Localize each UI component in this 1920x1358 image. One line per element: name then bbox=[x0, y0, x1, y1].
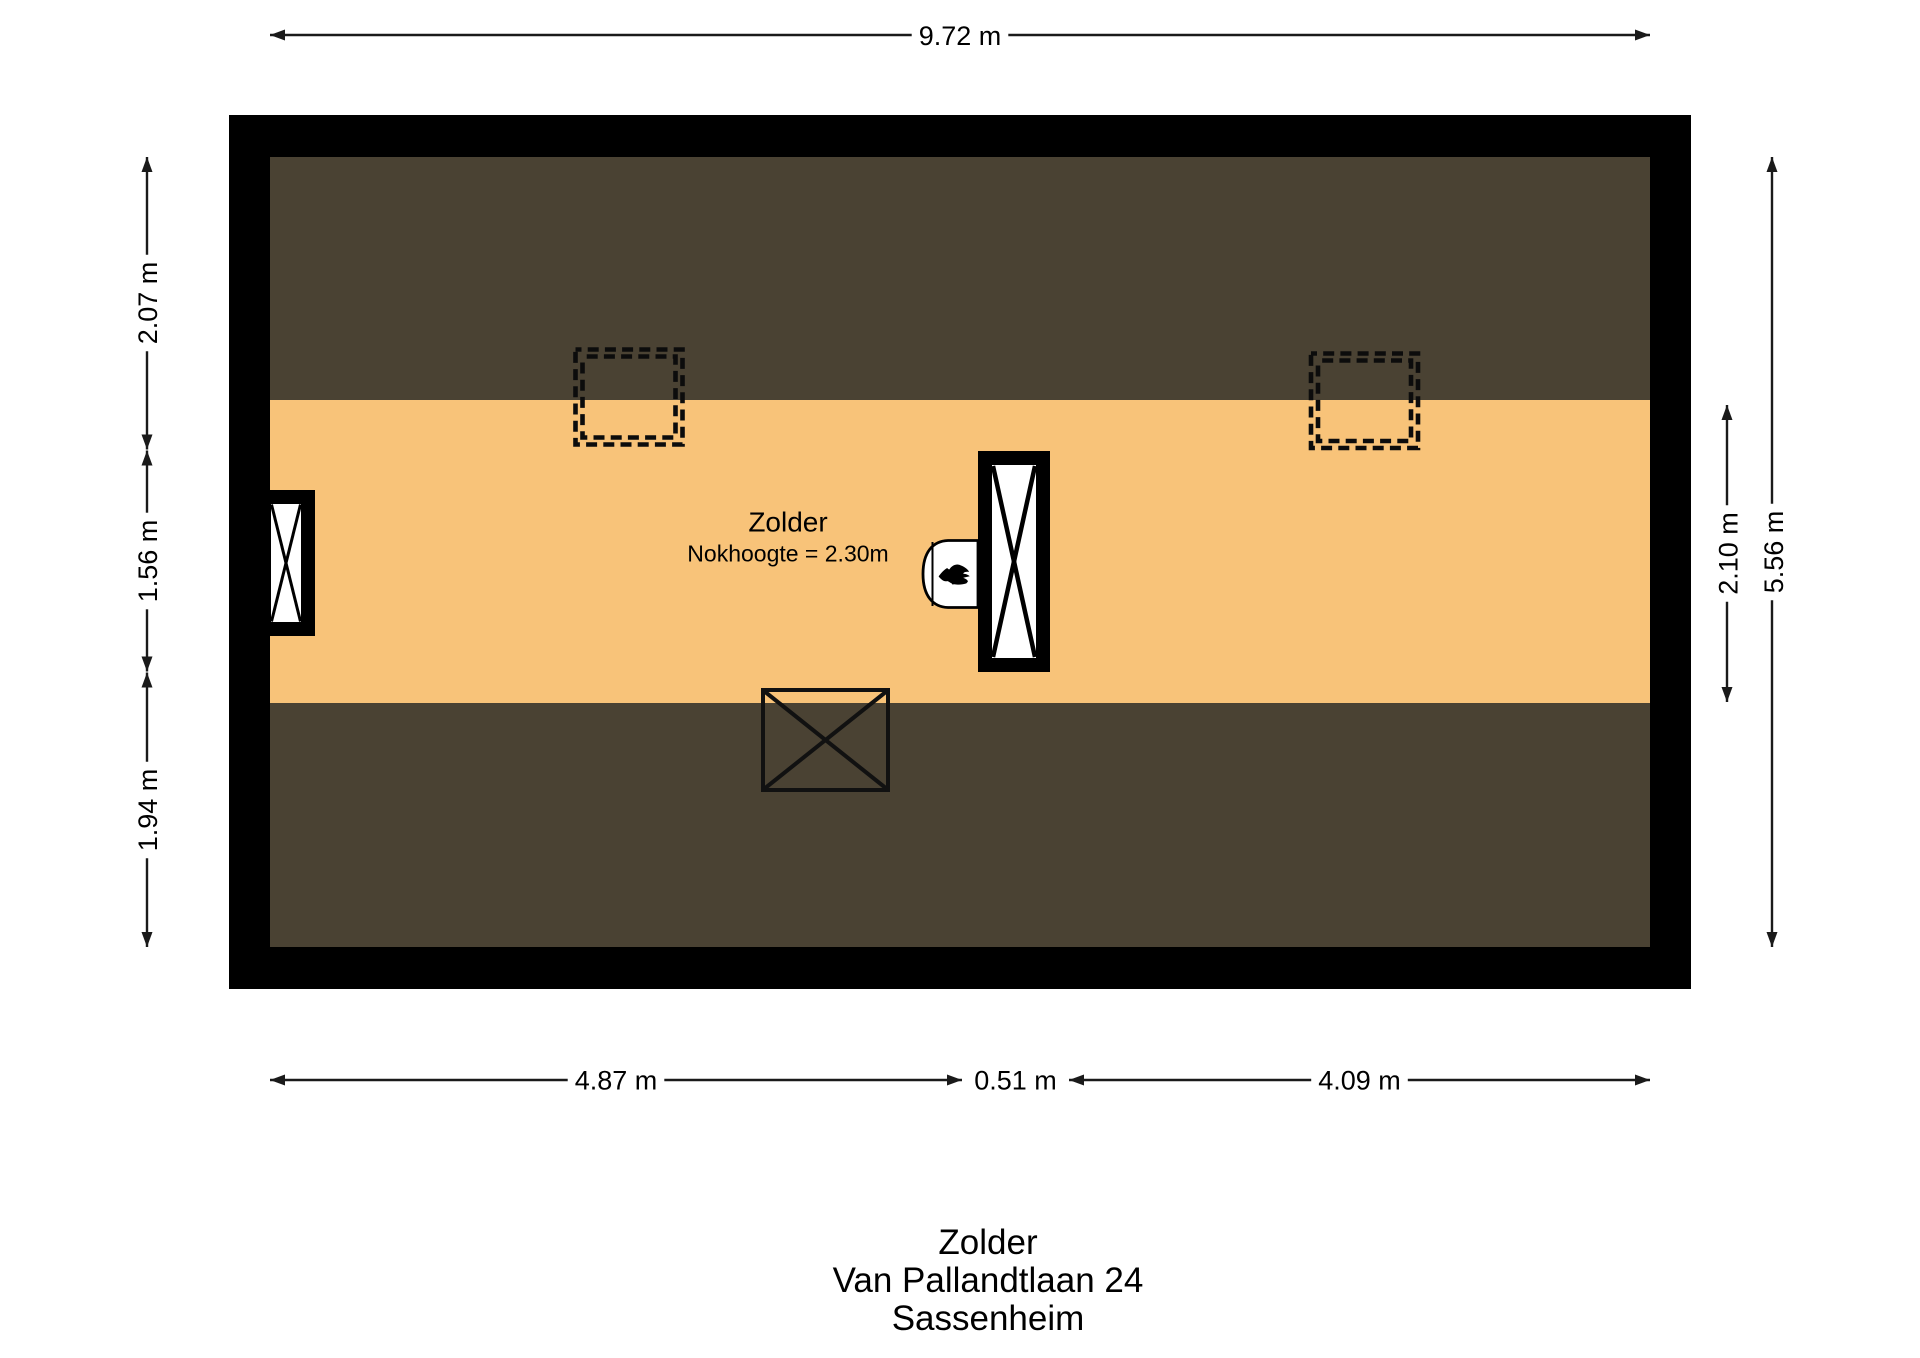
svg-text:1.56 m: 1.56 m bbox=[133, 520, 163, 603]
svg-text:Sassenheim: Sassenheim bbox=[892, 1299, 1085, 1338]
svg-text:Zolder: Zolder bbox=[938, 1223, 1038, 1262]
svg-text:9.72 m: 9.72 m bbox=[919, 21, 1002, 51]
svg-text:5.56 m: 5.56 m bbox=[1759, 511, 1789, 594]
svg-text:2.10 m: 2.10 m bbox=[1714, 512, 1744, 595]
svg-text:1.94 m: 1.94 m bbox=[133, 769, 163, 852]
svg-text:2.07 m: 2.07 m bbox=[133, 262, 163, 345]
svg-text:Van Pallandtlaan 24: Van Pallandtlaan 24 bbox=[833, 1261, 1144, 1300]
svg-text:4.87 m: 4.87 m bbox=[575, 1066, 658, 1096]
svg-text:Zolder: Zolder bbox=[748, 507, 827, 538]
svg-text:4.09 m: 4.09 m bbox=[1318, 1066, 1401, 1096]
svg-text:Nokhoogte = 2.30m: Nokhoogte = 2.30m bbox=[687, 541, 888, 567]
svg-text:0.51 m: 0.51 m bbox=[974, 1066, 1057, 1096]
